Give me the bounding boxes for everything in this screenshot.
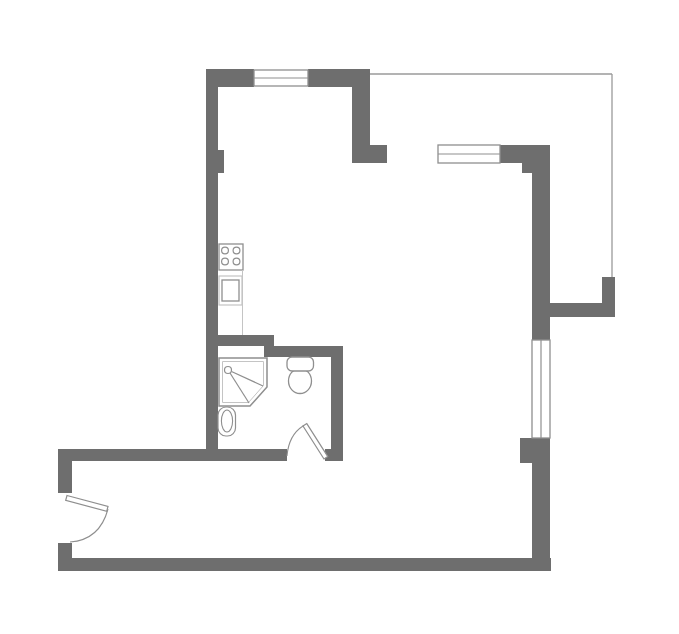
wall-terrace-jut bbox=[550, 303, 615, 317]
wall-east-top bbox=[500, 145, 550, 163]
floor-plan-svg bbox=[0, 0, 679, 634]
wall-right-lower bbox=[532, 463, 550, 571]
wall-bottom bbox=[58, 558, 551, 571]
wall-bath-divider-a bbox=[206, 335, 274, 346]
toilet-icon-tank bbox=[287, 357, 314, 371]
wall-terrace-stub bbox=[602, 277, 615, 303]
burner-icon bbox=[222, 258, 229, 265]
floor-plan bbox=[0, 0, 679, 634]
burner-icon bbox=[233, 247, 240, 254]
burner-icon bbox=[233, 258, 240, 265]
wall-toilet-right bbox=[331, 346, 343, 461]
burner-icon bbox=[222, 247, 229, 254]
wall-hall-left-lower bbox=[58, 543, 72, 558]
wall-kitchen-right bbox=[352, 87, 370, 163]
wall-top-right bbox=[308, 69, 370, 87]
wall-east-corner-step bbox=[522, 163, 550, 173]
sink-icon-basin bbox=[221, 410, 232, 432]
shower-head-icon bbox=[225, 367, 232, 374]
oven-icon-door bbox=[222, 280, 239, 301]
toilet-icon-bowl bbox=[289, 369, 312, 394]
wall-kitchen-foot bbox=[370, 145, 387, 163]
wall-hall-top bbox=[58, 449, 287, 461]
wall-top-left bbox=[206, 69, 254, 87]
wall-left-pilaster bbox=[218, 150, 224, 173]
wall-left-kitchen bbox=[206, 69, 218, 461]
wall-right-pier bbox=[520, 438, 550, 463]
wall-right-upper bbox=[532, 173, 550, 340]
